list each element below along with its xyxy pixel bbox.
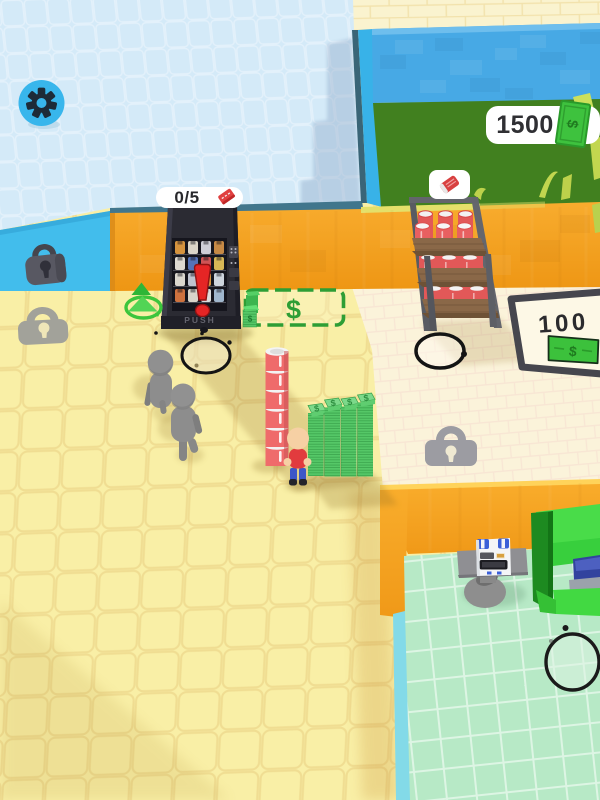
- svg-text:$: $: [286, 295, 301, 325]
- svg-text:100: 100: [537, 308, 589, 338]
- svg-text:1500: 1500: [496, 111, 554, 139]
- svg-text:PUSH: PUSH: [184, 315, 216, 325]
- svg-text:$: $: [248, 315, 253, 324]
- svg-text:0/5: 0/5: [174, 188, 199, 207]
